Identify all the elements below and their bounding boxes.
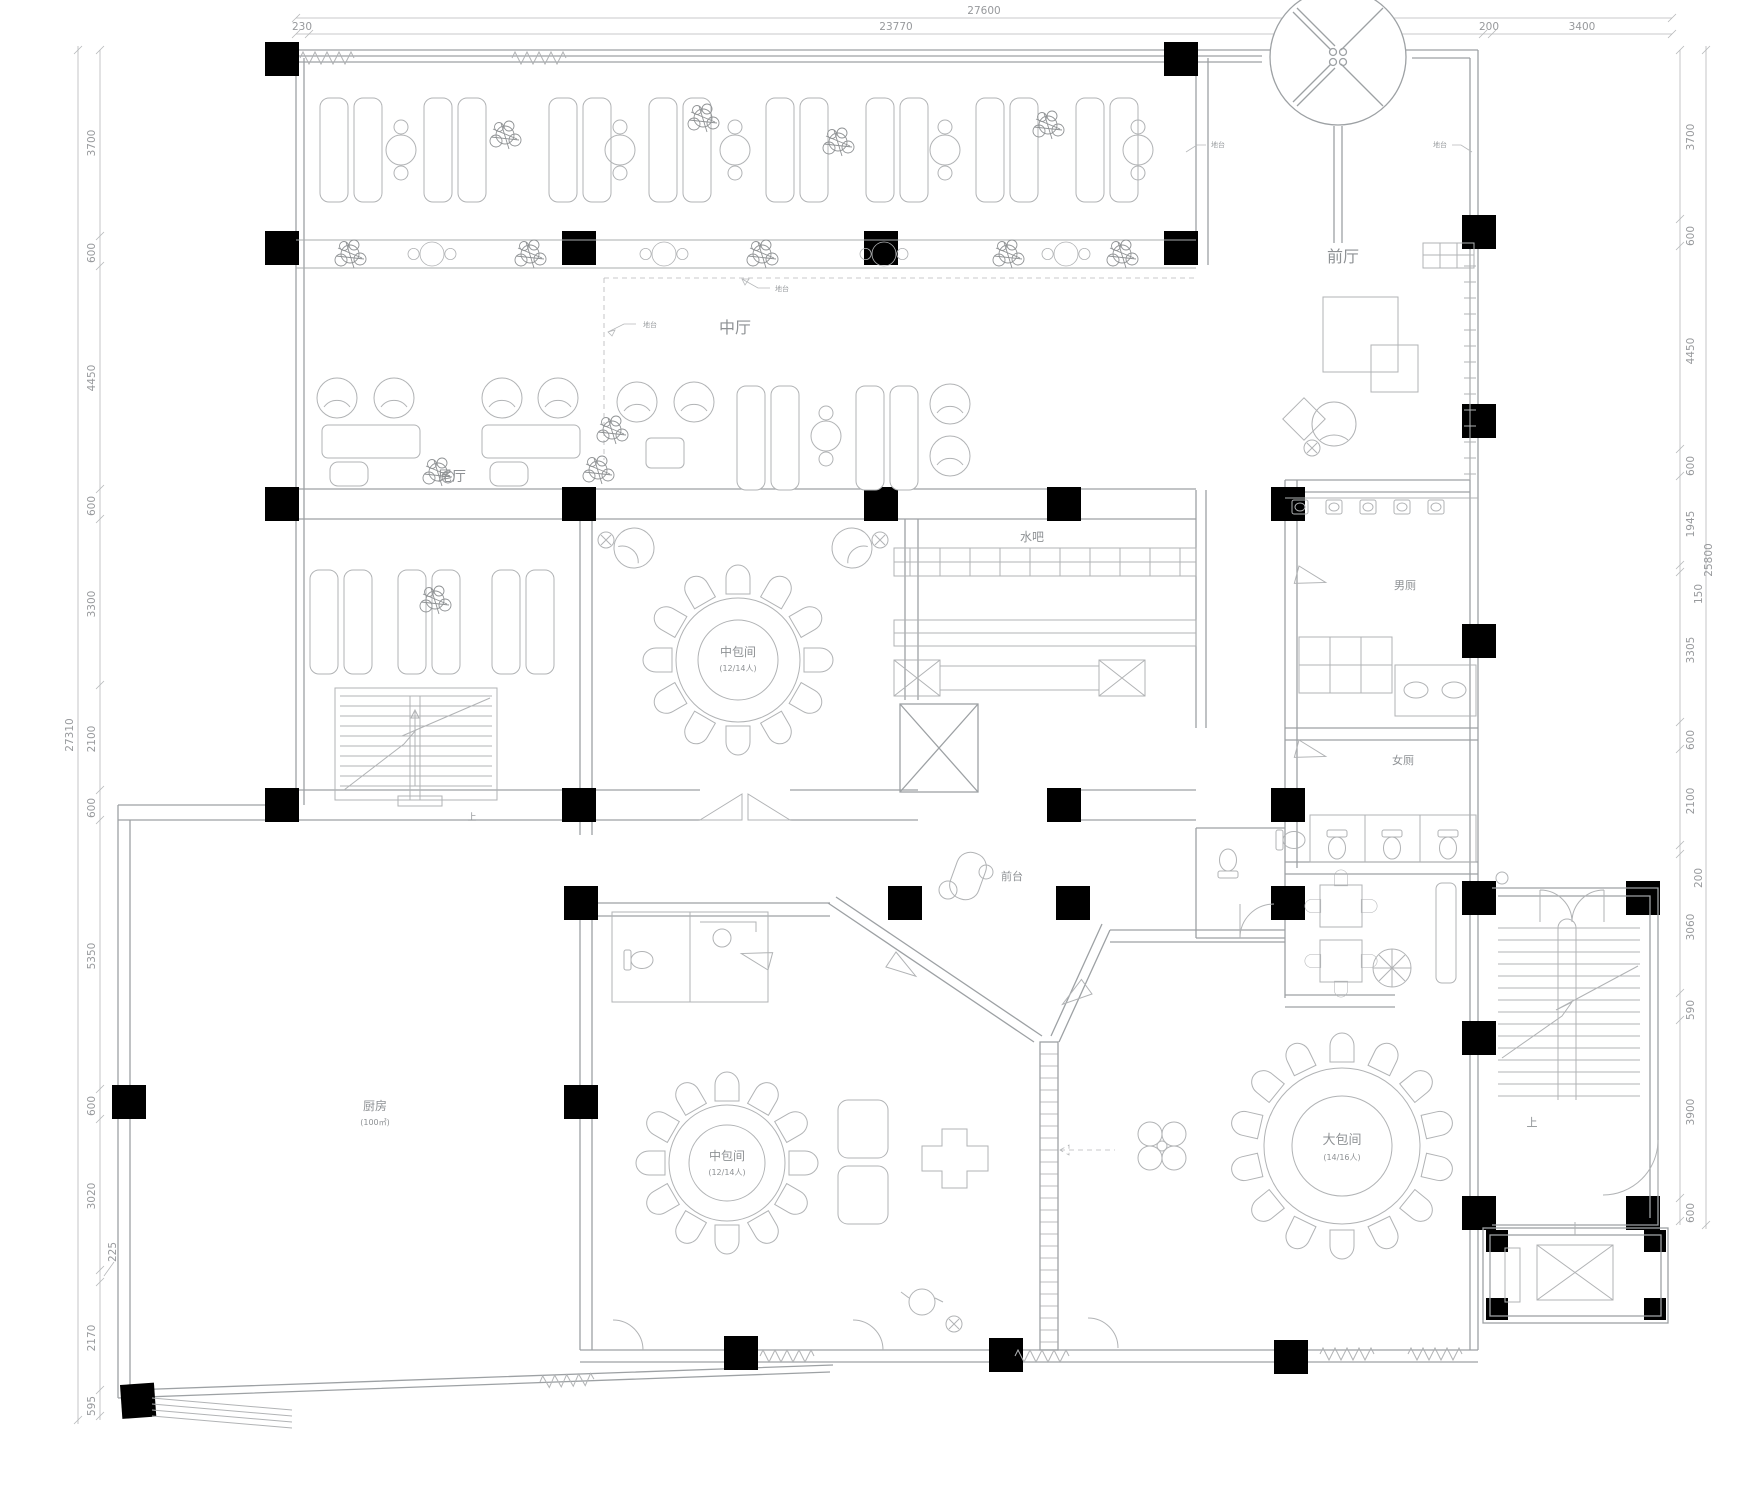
dim-left-11: 2170 <box>86 1325 98 1352</box>
door-swing-dashed <box>1060 1145 1115 1155</box>
dim-right-2: 4450 <box>1685 338 1697 365</box>
structural-columns <box>112 42 1666 1419</box>
dim-left-5: 2100 <box>86 726 98 753</box>
room-label-medium-lower: 中包间 <box>709 1148 745 1163</box>
dim-left-1: 600 <box>86 243 98 263</box>
room-label-mens: 男厕 <box>1394 579 1416 592</box>
dim-left-10: 225 <box>107 1242 119 1262</box>
restrooms <box>1218 498 1478 938</box>
room-label-medium-upper-cap: (12/14人) <box>719 664 756 673</box>
dim-left-overall: 27310 <box>64 718 76 751</box>
entrance-revolving-feature <box>1270 0 1406 125</box>
dim-left-7: 5350 <box>86 943 98 970</box>
room-label-front-hall: 前厅 <box>1327 247 1359 266</box>
planter-band <box>296 240 1196 268</box>
note-up-right: 上 <box>1527 1116 1538 1129</box>
dim-right-5: 150 <box>1693 584 1705 604</box>
dim-right-11: 590 <box>1685 1000 1697 1020</box>
dim-top-3400: 3400 <box>1569 21 1596 33</box>
dim-left-3: 600 <box>86 496 98 516</box>
dim-right-4: 1945 <box>1685 511 1697 538</box>
dim-left-8: 600 <box>86 1096 98 1116</box>
partition-hatched-wall <box>1040 1042 1058 1350</box>
room-label-middle-hall: 中厅 <box>719 318 751 337</box>
right-annex <box>1483 872 1668 1323</box>
dim-right-1: 600 <box>1685 226 1697 246</box>
terrace-lines <box>152 1398 292 1428</box>
room-label-kitchen: 厨房 <box>363 1098 387 1113</box>
note-platform-c: 地台 <box>1211 140 1225 149</box>
tea-area <box>1305 870 1456 997</box>
dim-left-9: 3020 <box>86 1183 98 1210</box>
dim-right-overall: 25800 <box>1703 543 1715 576</box>
note-platform-b: 地台 <box>643 320 657 329</box>
room-label-water-bar: 水吧 <box>1020 530 1044 544</box>
dim-right-7: 600 <box>1685 730 1697 750</box>
middle-hall-furniture <box>597 382 970 490</box>
dim-top-23770: 23770 <box>879 21 912 33</box>
room-label-large: 大包间 <box>1322 1133 1361 1148</box>
dim-right-3: 600 <box>1685 456 1697 476</box>
top-dining-booths <box>320 98 1138 202</box>
quad-table <box>1138 1122 1186 1170</box>
dim-right-12: 3900 <box>1685 1099 1697 1126</box>
dim-left-4: 3300 <box>86 591 98 618</box>
left-booth-block <box>310 570 554 674</box>
room-label-large-cap: (14/16人) <box>1323 1153 1360 1162</box>
dim-left-2: 4450 <box>86 365 98 392</box>
room-label-medium-lower-cap: (12/14人) <box>708 1168 745 1177</box>
note-up-left: 上 <box>467 812 476 823</box>
dim-right-13: 600 <box>1685 1203 1697 1223</box>
large-private-room <box>1138 1033 1455 1259</box>
room-label-womens: 女厕 <box>1392 753 1414 767</box>
dim-top-200: 200 <box>1479 21 1499 33</box>
dim-left-0: 3700 <box>86 130 98 157</box>
floor-plan-drawing: 27600 230 23770 200 3400 27310 3700 600 … <box>0 0 1744 1491</box>
leader-notes: 地台 地台 地台 地台 上 上 <box>467 140 1537 1129</box>
room-label-front-desk: 前台 <box>1001 869 1023 883</box>
room-label-medium-upper: 中包间 <box>720 644 756 659</box>
dim-right-10: 3060 <box>1685 914 1697 941</box>
front-desk <box>939 848 993 903</box>
stairs-upper-left <box>335 688 497 806</box>
dim-left-6: 600 <box>86 798 98 818</box>
note-platform-a: 地台 <box>775 284 789 293</box>
dim-top-overall: 27600 <box>967 5 1000 17</box>
dim-right-0: 3700 <box>1685 124 1697 151</box>
dim-right-9: 200 <box>1693 868 1705 888</box>
room-label-kitchen-area: (100㎡) <box>360 1118 390 1127</box>
note-platform-d: 地台 <box>1433 140 1447 149</box>
elevator-shaft <box>1483 1222 1668 1323</box>
water-bar <box>894 548 1196 792</box>
room-label-tail-hall: 尾厅 <box>438 469 466 485</box>
floor-plan-page: 27600 230 23770 200 3400 27310 3700 600 … <box>0 0 1744 1491</box>
dim-top-230: 230 <box>292 21 312 33</box>
dim-left-12: 595 <box>86 1396 98 1416</box>
dim-right-8: 2100 <box>1685 788 1697 815</box>
dim-right-6: 3305 <box>1685 637 1697 664</box>
front-hall-furniture <box>1283 243 1476 480</box>
